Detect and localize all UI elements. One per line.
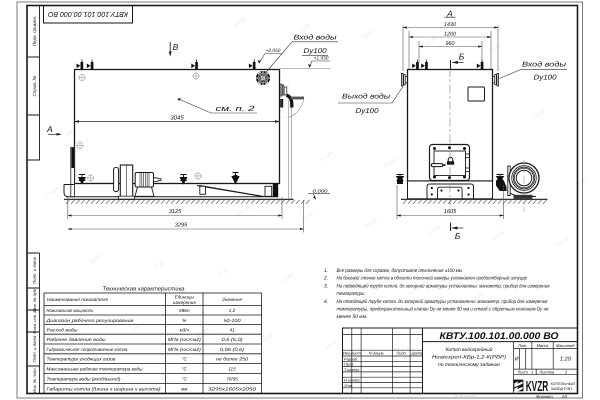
- svg-text:KVZR: KVZR: [45, 186, 60, 199]
- svg-text:Dy100: Dy100: [304, 48, 327, 55]
- svg-text:Взам. инв. №: Взам. инв. №: [32, 308, 37, 334]
- svg-text:0,6 (6,0): 0,6 (6,0): [222, 337, 244, 342]
- svg-text:50-100: 50-100: [224, 318, 242, 323]
- svg-text:KVZR: KVZR: [491, 230, 506, 243]
- svg-text:Инв. № дубл.: Инв. № дубл.: [32, 286, 37, 311]
- svg-text:°С: °С: [182, 366, 188, 371]
- svg-text:+2.050: +2.050: [266, 48, 281, 54]
- svg-text:Масса: Масса: [537, 343, 550, 348]
- svg-text:KVZR: KVZR: [297, 23, 312, 36]
- svg-text:KVZR: KVZR: [153, 260, 168, 273]
- svg-text:1260: 1260: [444, 31, 456, 37]
- svg-text:KVZR: KVZR: [526, 379, 549, 395]
- svg-text:Dy100: Dy100: [534, 75, 557, 82]
- svg-text:Котел водогрейный: Котел водогрейный: [446, 347, 493, 353]
- svg-text:Техническая характеристика: Техническая характеристика: [102, 287, 185, 293]
- svg-text:В: В: [173, 42, 179, 52]
- svg-text:температуры.: температуры.: [337, 291, 366, 297]
- svg-text:0.000: 0.000: [313, 189, 329, 194]
- svg-text:1:20: 1:20: [560, 357, 572, 363]
- svg-text:см. п. 2: см. п. 2: [216, 104, 256, 113]
- svg-text:Лист: Лист: [350, 351, 362, 356]
- svg-text:МПа (кгс/см2): МПа (кгс/см2): [168, 337, 202, 342]
- svg-text:Подп.: Подп.: [397, 351, 407, 356]
- svg-text:KVZR: KVZR: [320, 151, 335, 164]
- svg-text:А: А: [446, 8, 453, 18]
- svg-text:4.: 4.: [324, 299, 328, 305]
- svg-text:Подп. и дата: Подп. и дата: [32, 256, 37, 284]
- svg-text:KVZR: KVZR: [428, 224, 443, 237]
- svg-text:Гидравлическое сопротивление к: Гидравлическое сопротивление котла: [47, 347, 128, 352]
- svg-text:Диапазон рабочего регулировани: Диапазон рабочего регулирования: [45, 318, 134, 323]
- svg-text:Температура уходящих газов: Температура уходящих газов: [47, 357, 117, 362]
- svg-text:KVZR: KVZR: [361, 29, 376, 42]
- svg-text:KVZR: KVZR: [216, 266, 231, 279]
- svg-text:Н.контр.: Н.контр.: [344, 378, 360, 383]
- svg-text:Б: Б: [459, 51, 465, 61]
- svg-text:мм: мм: [181, 386, 188, 391]
- svg-text:Вход воды: Вход воды: [294, 34, 338, 42]
- svg-text:На отводящей трубе котла, до з: На отводящей трубе котла, до запорной ар…: [337, 299, 548, 305]
- svg-text:Инв. № подл.: Инв. № подл.: [32, 367, 37, 392]
- svg-text:Т.контр.: Т.контр.: [344, 367, 360, 372]
- svg-text:1,2: 1,2: [229, 308, 236, 313]
- svg-text:А3: А3: [561, 394, 568, 399]
- svg-text:1430: 1430: [444, 22, 456, 28]
- svg-text:Пров.: Пров.: [344, 362, 354, 367]
- svg-text:На боковой стенке котла в обла: На боковой стенке котла в области топочн…: [337, 276, 528, 282]
- svg-text:%: %: [182, 318, 186, 323]
- svg-text:Вход воды: Вход воды: [522, 61, 567, 69]
- svg-text:не более 250: не более 250: [216, 357, 248, 362]
- svg-text:3295: 3295: [175, 223, 188, 229]
- svg-text:+1.930: +1.930: [314, 56, 329, 62]
- svg-text:3295х1605х2050: 3295х1605х2050: [208, 386, 257, 391]
- svg-text:Рабочее давление воды: Рабочее давление воды: [47, 337, 107, 342]
- svg-text:МПа (кгс/см2): МПа (кгс/см2): [168, 347, 202, 352]
- svg-text:Расход воды: Расход воды: [47, 327, 79, 332]
- svg-text:Утв.: Утв.: [344, 383, 353, 388]
- svg-text:Единицы: Единицы: [175, 295, 195, 300]
- svg-text:На подводящей трубе котла, до: На подводящей трубе котла, до запорной а…: [337, 283, 550, 289]
- svg-text:KVZR: KVZR: [532, 109, 547, 122]
- svg-text:Все размеры для справок, допус: Все размеры для справок, допустимое откл…: [337, 268, 464, 274]
- svg-text:KVZR: KVZR: [133, 320, 148, 333]
- svg-text:И: И: [515, 357, 519, 363]
- svg-text:KVZR: KVZR: [324, 339, 339, 352]
- svg-text:Б: Б: [455, 231, 461, 241]
- svg-text:Формат: Формат: [536, 394, 553, 399]
- svg-text:0,06 (0,6): 0,06 (0,6): [220, 347, 245, 352]
- svg-text:КВТУ.100.101.00.000 ВО: КВТУ.100.101.00.000 ВО: [440, 331, 560, 342]
- svg-text:Лит.: Лит.: [517, 343, 527, 348]
- svg-text:115: 115: [228, 366, 236, 371]
- svg-text:А: А: [46, 124, 53, 134]
- svg-text:Номинальная мощность: Номинальная мощность: [47, 308, 95, 313]
- svg-text:3045: 3045: [170, 115, 184, 122]
- svg-text:Разраб.: Разраб.: [344, 356, 358, 361]
- svg-text:KVZR: KVZR: [260, 333, 275, 346]
- svg-text:1.: 1.: [324, 268, 328, 274]
- svg-text:960: 960: [446, 41, 455, 47]
- svg-text:Температура воды (вход/выход): Температура воды (вход/выход): [47, 376, 121, 381]
- svg-text:менее 50 мм.: менее 50 мм.: [337, 314, 368, 320]
- svg-text:Листов: Листов: [539, 369, 555, 374]
- svg-text:м3/ч: м3/ч: [180, 327, 190, 332]
- svg-text:Габариты котла (длина х ширина: Габариты котла (длина х ширина х высота): [47, 386, 162, 391]
- svg-text:Справ. №: Справ. №: [32, 76, 37, 97]
- svg-text:1: 1: [531, 369, 533, 374]
- svg-text:KVZR: KVZR: [280, 272, 295, 285]
- svg-text:KVZR: KVZR: [555, 237, 570, 250]
- svg-text:Наименование показателя: Наименование показателя: [47, 297, 109, 302]
- svg-text:температуры, предохранительный: температуры, предохранительный клапан Dy…: [337, 306, 549, 312]
- svg-text:°С: °С: [182, 376, 188, 381]
- svg-text:Максимальная рабочая температу: Максимальная рабочая температура воды: [47, 366, 144, 371]
- svg-text:Перв. примен.: Перв. примен.: [32, 16, 37, 47]
- svg-text:1605: 1605: [444, 209, 457, 215]
- svg-text:измерения: измерения: [173, 300, 197, 305]
- svg-text:KVZR: KVZR: [364, 218, 379, 231]
- svg-text:N докум.: N докум.: [369, 351, 385, 356]
- svg-text:МВт: МВт: [179, 308, 190, 313]
- svg-text:2: 2: [564, 369, 568, 374]
- svg-text:2.: 2.: [323, 276, 328, 282]
- svg-text:Лист: Лист: [517, 369, 529, 374]
- svg-text:KVZR: KVZR: [488, 42, 503, 55]
- svg-text:KVZR: KVZR: [384, 157, 399, 170]
- svg-text:КВТУ.100.101.00.000 ВО: КВТУ.100.101.00.000 ВО: [48, 10, 128, 19]
- svg-text:ЗАВОД РЭП: ЗАВОД РЭП: [551, 387, 573, 391]
- svg-text:3125: 3125: [169, 209, 182, 215]
- svg-text:41: 41: [229, 327, 235, 332]
- svg-text:°С: °С: [182, 357, 188, 362]
- svg-text:Heatexpert-КВр-1,2-К(РВР): Heatexpert-КВр-1,2-К(РВР): [432, 355, 506, 361]
- svg-text:Подп. и дата: Подп. и дата: [32, 335, 37, 363]
- svg-text:Масштаб: Масштаб: [556, 343, 575, 348]
- svg-text:KVZR: KVZR: [233, 16, 248, 29]
- svg-text:3.: 3.: [324, 283, 328, 289]
- svg-text:70/95: 70/95: [226, 376, 238, 381]
- svg-text:КОТЕЛЬНЫЙ: КОТЕЛЬНЫЙ: [551, 381, 576, 386]
- svg-text:KVZR: KVZR: [240, 394, 255, 400]
- svg-text:по техническому заданию: по техническому заданию: [438, 362, 500, 368]
- svg-text:Дата: Дата: [411, 351, 423, 356]
- svg-text:KVZR: KVZR: [89, 253, 104, 266]
- svg-text:Dy100: Dy100: [356, 108, 379, 115]
- svg-text:Копировал: Копировал: [455, 394, 476, 399]
- svg-text:Значение: Значение: [222, 297, 243, 302]
- svg-text:Выход воды: Выход воды: [342, 93, 391, 101]
- svg-text:KVZR: KVZR: [300, 211, 315, 224]
